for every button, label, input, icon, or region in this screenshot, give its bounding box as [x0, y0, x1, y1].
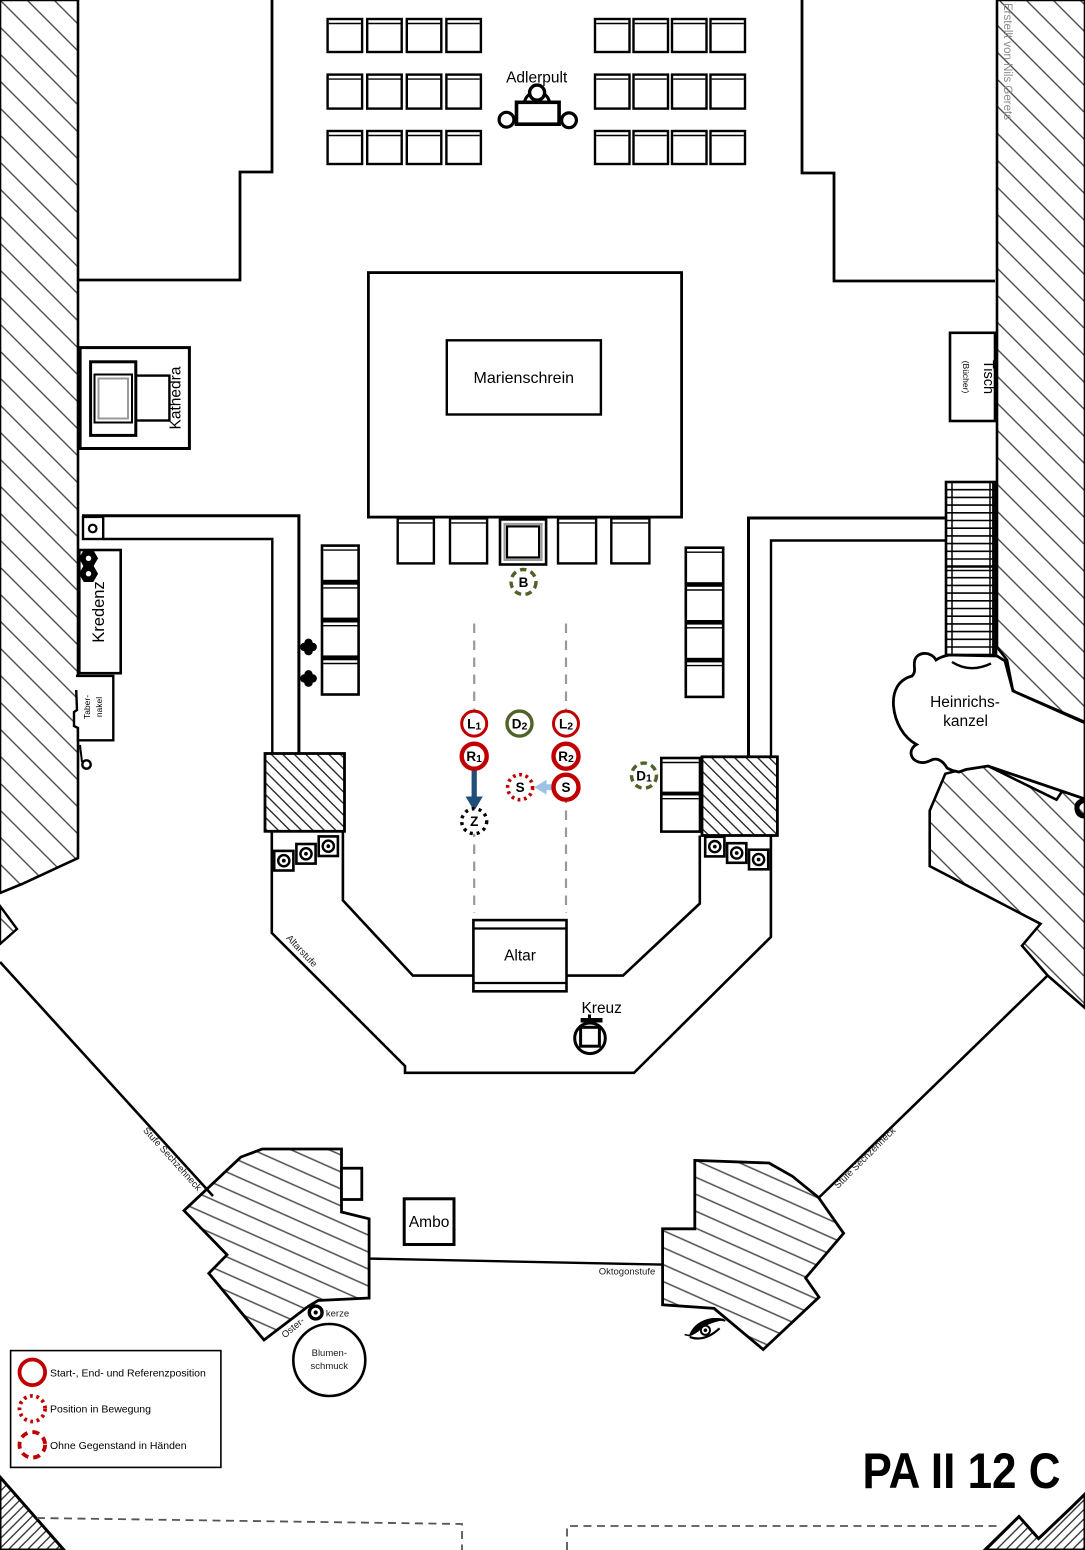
svg-text:Taber-: Taber- — [82, 695, 92, 719]
svg-text:Kathedra: Kathedra — [168, 366, 185, 429]
svg-text:PA II 12 C: PA II 12 C — [863, 1443, 1061, 1499]
svg-text:Start-, End- und Referenzposit: Start-, End- und Referenzposition — [50, 1367, 206, 1379]
svg-text:nakel: nakel — [94, 697, 104, 717]
svg-text:kerze: kerze — [326, 1309, 349, 1320]
svg-text:Z: Z — [470, 814, 478, 829]
svg-text:(Bücher): (Bücher) — [961, 361, 971, 394]
svg-text:Erstellt von Nils Gerets: Erstellt von Nils Gerets — [1001, 3, 1013, 120]
svg-text:Tisch: Tisch — [980, 360, 996, 394]
svg-text:B: B — [519, 575, 529, 590]
svg-text:Kreuz: Kreuz — [581, 1000, 622, 1017]
svg-text:schmuck: schmuck — [311, 1361, 349, 1372]
svg-text:S: S — [516, 780, 525, 795]
svg-text:Heinrichs-: Heinrichs- — [930, 694, 1000, 711]
svg-text:S: S — [561, 780, 570, 795]
svg-text:Ambo: Ambo — [409, 1214, 450, 1231]
svg-text:Altar: Altar — [504, 948, 536, 965]
svg-text:Ohne Gegenstand in Händen: Ohne Gegenstand in Händen — [50, 1440, 187, 1452]
svg-text:Kredenz: Kredenz — [90, 581, 108, 642]
svg-text:kanzel: kanzel — [943, 713, 988, 730]
svg-text:Position in Bewegung: Position in Bewegung — [50, 1404, 151, 1416]
svg-text:Marienschrein: Marienschrein — [474, 370, 574, 387]
svg-text:Oktogonstufe: Oktogonstufe — [599, 1267, 656, 1278]
svg-text:Blumen-: Blumen- — [312, 1348, 347, 1359]
